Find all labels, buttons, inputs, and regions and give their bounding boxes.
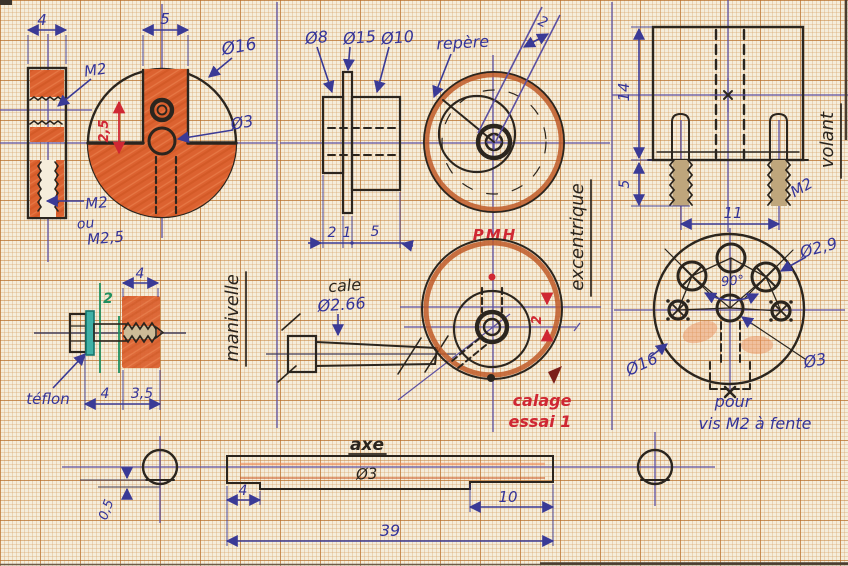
label-repere: repère xyxy=(436,32,490,54)
dim-body: 5 xyxy=(371,224,380,240)
axe-detail: axe Ø3 0,5 4 10 39 xyxy=(80,435,672,546)
label-angle-90: 90° xyxy=(721,273,745,290)
dim-flat-depth: 0,5 xyxy=(96,498,117,523)
label-cale-dia: Ø2.66 xyxy=(316,293,366,315)
thread-note-3: M2,5 xyxy=(86,227,124,248)
label-dia10: Ø10 xyxy=(379,27,414,49)
label-volant-thread: M2 xyxy=(787,174,815,201)
label-volant-axle-dia: Ø3 xyxy=(801,349,828,372)
dim-crank-width: 4 xyxy=(37,11,47,29)
dim-green-depth: 2 xyxy=(103,291,113,307)
dim-head-length: 4 xyxy=(101,386,110,402)
teflon-screw-detail: 4 2 4 3,5 téflon xyxy=(26,266,186,410)
note-vis-m2: vis M2 à fente xyxy=(698,414,811,433)
label-calage-1: calage xyxy=(513,391,572,410)
label-thread-m2: M2 xyxy=(83,60,108,81)
dim-offset-red: 2,5 xyxy=(97,119,112,142)
label-dia15: Ø15 xyxy=(341,27,376,49)
excentrique-side-view: Ø8 Ø15 Ø10 2 1 5 xyxy=(303,27,414,248)
dim-slot-width: 5 xyxy=(160,10,170,28)
dim-flat-right: 10 xyxy=(498,488,517,506)
label-outer-diameter: Ø16 xyxy=(219,34,258,60)
dim-calage-offset: 2 xyxy=(530,315,545,324)
dim-block-width: 4 xyxy=(136,266,145,282)
part-title-manivelle: manivelle xyxy=(222,274,243,362)
dim-flange: 1 xyxy=(343,225,352,241)
dim-screw-spacing: 11 xyxy=(723,204,742,222)
note-pour: pour xyxy=(714,392,753,411)
dim-body-length: 3,5 xyxy=(131,386,153,402)
part-title-axe: axe xyxy=(350,435,384,455)
technical-drawing-page: 4 5 Ø16 M2 Ø3 2,5 M2 ou M2,5 manivelle xyxy=(0,0,848,566)
part-title-excentrique: excentrique xyxy=(567,183,588,290)
label-teflon: téflon xyxy=(26,390,69,408)
label-calage-2: essai 1 xyxy=(509,412,572,431)
part-title-volant: volant xyxy=(817,111,838,168)
label-axe-dia: Ø3 xyxy=(355,464,378,483)
dim-flat-left: 4 xyxy=(239,483,248,499)
excentrique-repere-view: 2 repère PMH xyxy=(424,7,564,244)
thread-note-1: M2 xyxy=(85,193,109,213)
label-dia8: Ø8 xyxy=(303,27,328,48)
dim-volant-height: 14 xyxy=(615,82,633,101)
label-cale: cale xyxy=(328,275,362,296)
excentrique-calage-view: 2 calage essai 1 excentrique xyxy=(398,180,601,431)
drawing-canvas: 4 5 Ø16 M2 Ø3 2,5 M2 ou M2,5 manivelle xyxy=(0,0,848,566)
dim-boss: 2 xyxy=(328,225,337,241)
dim-screw-length: 5 xyxy=(617,179,633,188)
dim-total-length: 39 xyxy=(380,521,400,540)
